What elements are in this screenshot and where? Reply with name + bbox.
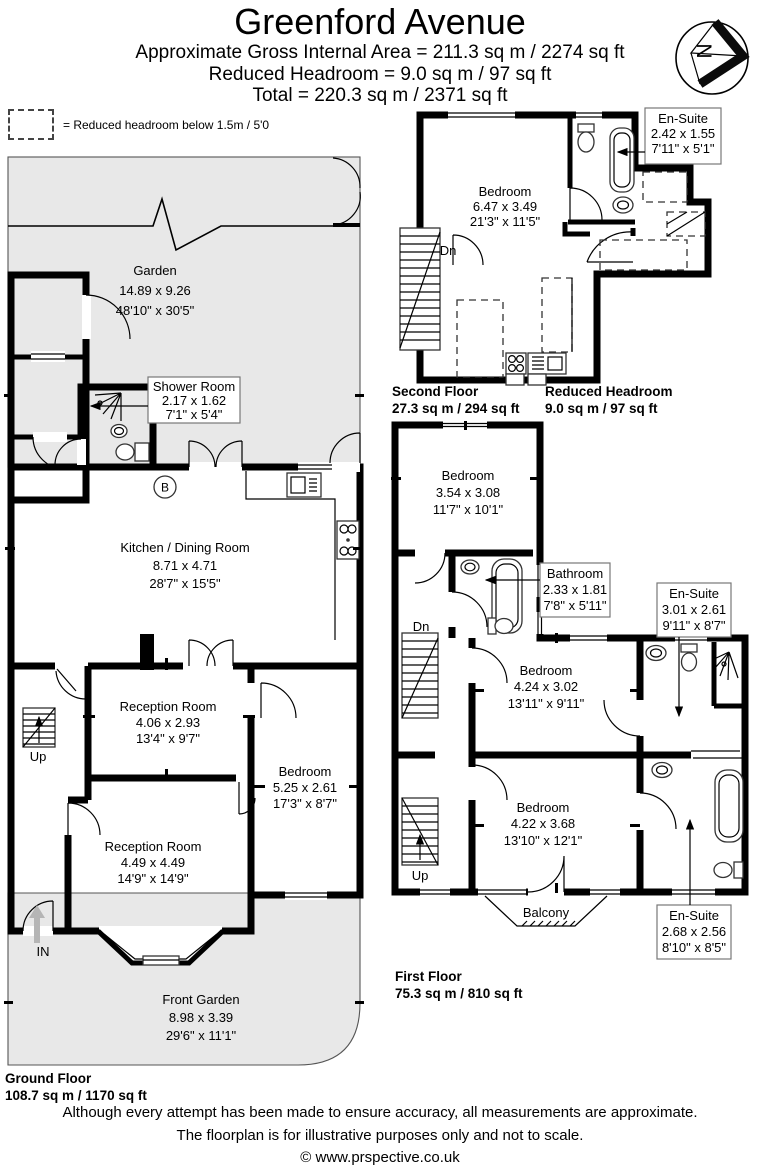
ensuite2-fixtures <box>652 763 743 879</box>
room-name: Bedroom <box>517 800 570 815</box>
entrance-label: IN <box>37 944 50 959</box>
basin-icon <box>652 763 672 778</box>
header: Greenford Avenue Approximate Gross Inter… <box>0 2 760 107</box>
legend-text: = Reduced headroom below 1.5m / 5'0 <box>63 118 269 132</box>
front-garden-label: Front Garden 8.98 x 3.39 29'6" x 11'1" <box>162 992 239 1043</box>
sliding-door <box>691 751 742 758</box>
ground-bedroom-label: Bedroom 5.25 x 2.61 17'3" x 8'7" <box>273 764 338 811</box>
reduced-headroom-swatch <box>8 109 54 140</box>
room-size-m: 4.06 x 2.93 <box>136 715 200 730</box>
stairs-down-label: Dn <box>440 243 457 258</box>
room-size-i: 7'1" x 5'4" <box>166 407 223 422</box>
room-name: En-Suite <box>658 111 708 126</box>
room-size-m: 4.22 x 3.68 <box>511 816 575 831</box>
room-name: En-Suite <box>669 908 719 923</box>
room-name: Bedroom <box>442 468 495 483</box>
first-bedroom1-label: Bedroom 3.54 x 3.08 11'7" x 10'1" <box>433 468 504 517</box>
disclaimer-line1: Although every attempt has been made to … <box>0 1102 760 1125</box>
boiler-symbol: B <box>154 476 176 498</box>
floor-name: Second Floor <box>392 383 520 400</box>
bathtub-icon <box>610 128 634 192</box>
room-name: Kitchen / Dining Room <box>120 540 249 555</box>
compass-north-label: N <box>692 43 715 58</box>
room-size-m: 4.24 x 3.02 <box>514 679 578 694</box>
door-arc <box>453 235 483 265</box>
room-size-m: 3.54 x 3.08 <box>436 485 500 500</box>
room-name: Bedroom <box>520 663 573 678</box>
floor-area: 9.0 sq m / 97 sq ft <box>545 400 673 417</box>
toilet-icon <box>681 644 697 671</box>
room-name: Bedroom <box>479 184 532 199</box>
room-size-m: 6.47 x 3.49 <box>473 199 537 214</box>
floorplan-page: Greenford Avenue Approximate Gross Inter… <box>0 0 760 1168</box>
room-size-i: 13'10" x 12'1" <box>504 833 583 848</box>
room-name: Reception Room <box>105 839 202 854</box>
basin-icon <box>646 646 666 661</box>
toilet-icon <box>578 124 594 152</box>
windows <box>285 465 332 897</box>
room-size-i: 7'8" x 5'11" <box>543 598 606 613</box>
hob-icon <box>337 521 359 559</box>
page-title: Greenford Avenue <box>0 2 760 42</box>
room-name: Bathroom <box>547 566 603 581</box>
second-bedroom-label: Bedroom 6.47 x 3.49 21'3" x 11'5" <box>470 184 541 229</box>
room-size-m: 8.98 x 3.39 <box>169 1010 233 1025</box>
floor-name: Ground Floor <box>5 1070 147 1087</box>
copyright: © www.prspective.co.uk <box>0 1147 760 1168</box>
first-floor-plan: Balcony Bedroom 3.54 x 3.08 11'7" x 10'1… <box>390 420 755 980</box>
room-size-i: 13'11" x 9'11" <box>508 696 585 711</box>
first-floor-caption: First Floor 75.3 sq m / 810 sq ft <box>395 968 523 1002</box>
room-name: Shower Room <box>153 379 235 394</box>
compass-icon: N <box>672 10 754 104</box>
second-floor-caption: Second Floor 27.3 sq m / 294 sq ft <box>392 383 520 417</box>
stairs-icon <box>400 228 440 350</box>
svg-text:B: B <box>161 481 169 495</box>
room-size-i: 7'11" x 5'1" <box>651 141 714 156</box>
stairs-down-label: Dn <box>413 619 430 634</box>
reception2-label: Reception Room 4.49 x 4.49 14'9" x 14'9" <box>105 839 202 886</box>
room-size-m: 4.49 x 4.49 <box>121 855 185 870</box>
room-name: Reception Room <box>120 699 217 714</box>
room-size-i: 11'7" x 10'1" <box>433 502 504 517</box>
hob-icon <box>506 353 526 374</box>
room-name: Bedroom <box>279 764 332 779</box>
room-size-m: 2.68 x 2.56 <box>662 924 726 939</box>
floor-area: 75.3 sq m / 810 sq ft <box>395 985 523 1002</box>
sink-icon <box>528 353 566 374</box>
room-size-m: 8.71 x 4.71 <box>153 558 217 573</box>
balcony-label: Balcony <box>523 905 570 920</box>
appliance-front <box>528 374 546 385</box>
basin-icon <box>613 197 633 213</box>
room-size-m: 14.89 x 9.26 <box>119 283 191 298</box>
room-size-m: 2.33 x 1.81 <box>543 582 607 597</box>
room-size-i: 17'3" x 8'7" <box>273 796 337 811</box>
room-name: Front Garden <box>162 992 239 1007</box>
room-size-i: 14'9" x 14'9" <box>117 871 189 886</box>
reduced-headroom-caption: Reduced Headroom 9.0 sq m / 97 sq ft <box>545 383 673 417</box>
basin-icon <box>461 560 479 574</box>
sink-icon <box>287 473 321 497</box>
doors <box>23 433 360 931</box>
shower-icon <box>712 642 745 706</box>
stairs-icon <box>402 633 438 865</box>
reduced-headroom-line: Reduced Headroom = 9.0 sq m / 97 sq ft <box>0 64 760 86</box>
room-size-i: 21'3" x 11'5" <box>470 214 541 229</box>
legend: = Reduced headroom below 1.5m / 5'0 <box>8 109 269 140</box>
second-floor-plan: Bedroom 6.47 x 3.49 21'3" x 11'5" En-Sui… <box>390 100 730 400</box>
kitchen-counter <box>246 471 359 640</box>
room-size-i: 28'7" x 15'5" <box>149 576 221 591</box>
room-size-m: 2.17 x 1.62 <box>162 393 226 408</box>
kitchen-label: Kitchen / Dining Room 8.71 x 4.71 28'7" … <box>120 540 249 591</box>
room-size-m: 2.42 x 1.55 <box>651 126 715 141</box>
room-name: Garden <box>133 263 176 278</box>
stairs-up-label: Up <box>412 868 429 883</box>
bathtub-icon <box>715 770 743 842</box>
door-arc <box>570 188 602 220</box>
first-bedroom3-label: Bedroom 4.22 x 3.68 13'10" x 12'1" <box>504 800 583 848</box>
stairs-up-label: Up <box>30 749 47 764</box>
balcony: Balcony <box>485 896 607 926</box>
room-size-i: 48'10" x 30'5" <box>116 303 195 318</box>
room-size-i: 8'10" x 8'5" <box>662 940 726 955</box>
room-size-i: 13'4" x 9'7" <box>136 731 200 746</box>
stairs-icon <box>23 708 55 747</box>
door-arc <box>587 232 633 262</box>
disclaimer-line2: The floorplan is for illustrative purpos… <box>0 1125 760 1148</box>
room-size-m: 5.25 x 2.61 <box>273 780 337 795</box>
ground-floor-plan: B Garden 14.89 x 9.26 48'10" x 30'5" Sho… <box>3 155 365 1070</box>
footer-disclaimer: Although every attempt has been made to … <box>0 1102 760 1168</box>
reception1-label: Reception Room 4.06 x 2.93 13'4" x 9'7" <box>120 699 217 746</box>
toilet-icon <box>488 618 513 634</box>
room-size-m: 3.01 x 2.61 <box>662 602 726 617</box>
basin-icon <box>111 425 127 438</box>
room-size-i: 29'6" x 11'1" <box>166 1028 237 1043</box>
floor-name: First Floor <box>395 968 523 985</box>
wall-stub <box>140 634 154 670</box>
room-name: En-Suite <box>669 586 719 601</box>
gross-internal-area: Approximate Gross Internal Area = 211.3 … <box>0 42 760 64</box>
first-bedroom2-label: Bedroom 4.24 x 3.02 13'11" x 9'11" <box>508 663 585 711</box>
ground-floor-caption: Ground Floor 108.7 sq m / 1170 sq ft <box>5 1070 147 1104</box>
ensuite1-fixtures <box>646 642 745 706</box>
floor-area: 27.3 sq m / 294 sq ft <box>392 400 520 417</box>
ensuite-fixtures <box>578 124 634 213</box>
room-size-i: 9'11" x 8'7" <box>662 618 725 633</box>
floor-name: Reduced Headroom <box>545 383 673 400</box>
toilet-icon <box>714 862 743 878</box>
